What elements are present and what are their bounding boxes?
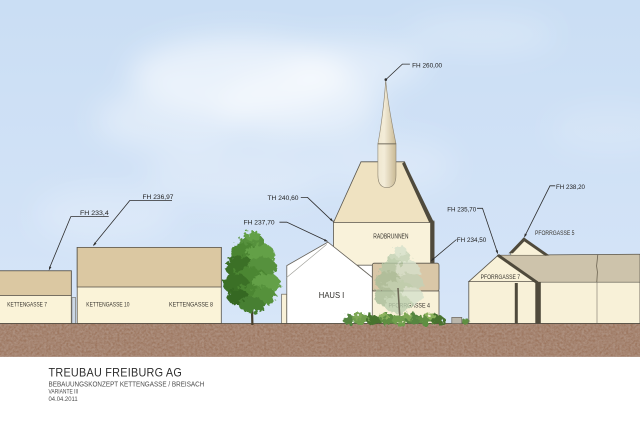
svg-text:KETTENGASSE 8: KETTENGASSE 8 [169,302,213,309]
svg-text:KETTENGASSE 10: KETTENGASSE 10 [86,302,130,309]
svg-text:TH 240,60: TH 240,60 [268,195,299,202]
svg-text:FH 233,4: FH 233,4 [80,210,109,217]
svg-text:FH 234,50: FH 234,50 [457,237,487,244]
svg-text:PFORRGASSE 5: PFORRGASSE 5 [535,230,575,237]
svg-text:04.04.2011: 04.04.2011 [49,396,78,403]
svg-text:TREUBAU FREIBURG AG: TREUBAU FREIBURG AG [49,365,183,379]
svg-text:HAUS I: HAUS I [319,291,345,300]
svg-text:FH 236,97: FH 236,97 [143,194,174,201]
svg-text:RADBRUNNEN: RADBRUNNEN [373,234,408,241]
svg-text:BEBAUUNGSKONZEPT KETTENGASSE /: BEBAUUNGSKONZEPT KETTENGASSE / BREISACH [49,379,205,388]
svg-text:FH 237,70: FH 237,70 [244,220,275,227]
svg-text:FH 260,00: FH 260,00 [412,62,442,69]
svg-text:FH 238,20: FH 238,20 [556,184,585,191]
svg-text:FH 235,70: FH 235,70 [447,206,476,213]
svg-text:VARIANTE III: VARIANTE III [49,388,79,395]
svg-text:KETTENGASSE 7: KETTENGASSE 7 [7,302,47,309]
svg-text:PFORRGASSE 7: PFORRGASSE 7 [481,274,521,281]
